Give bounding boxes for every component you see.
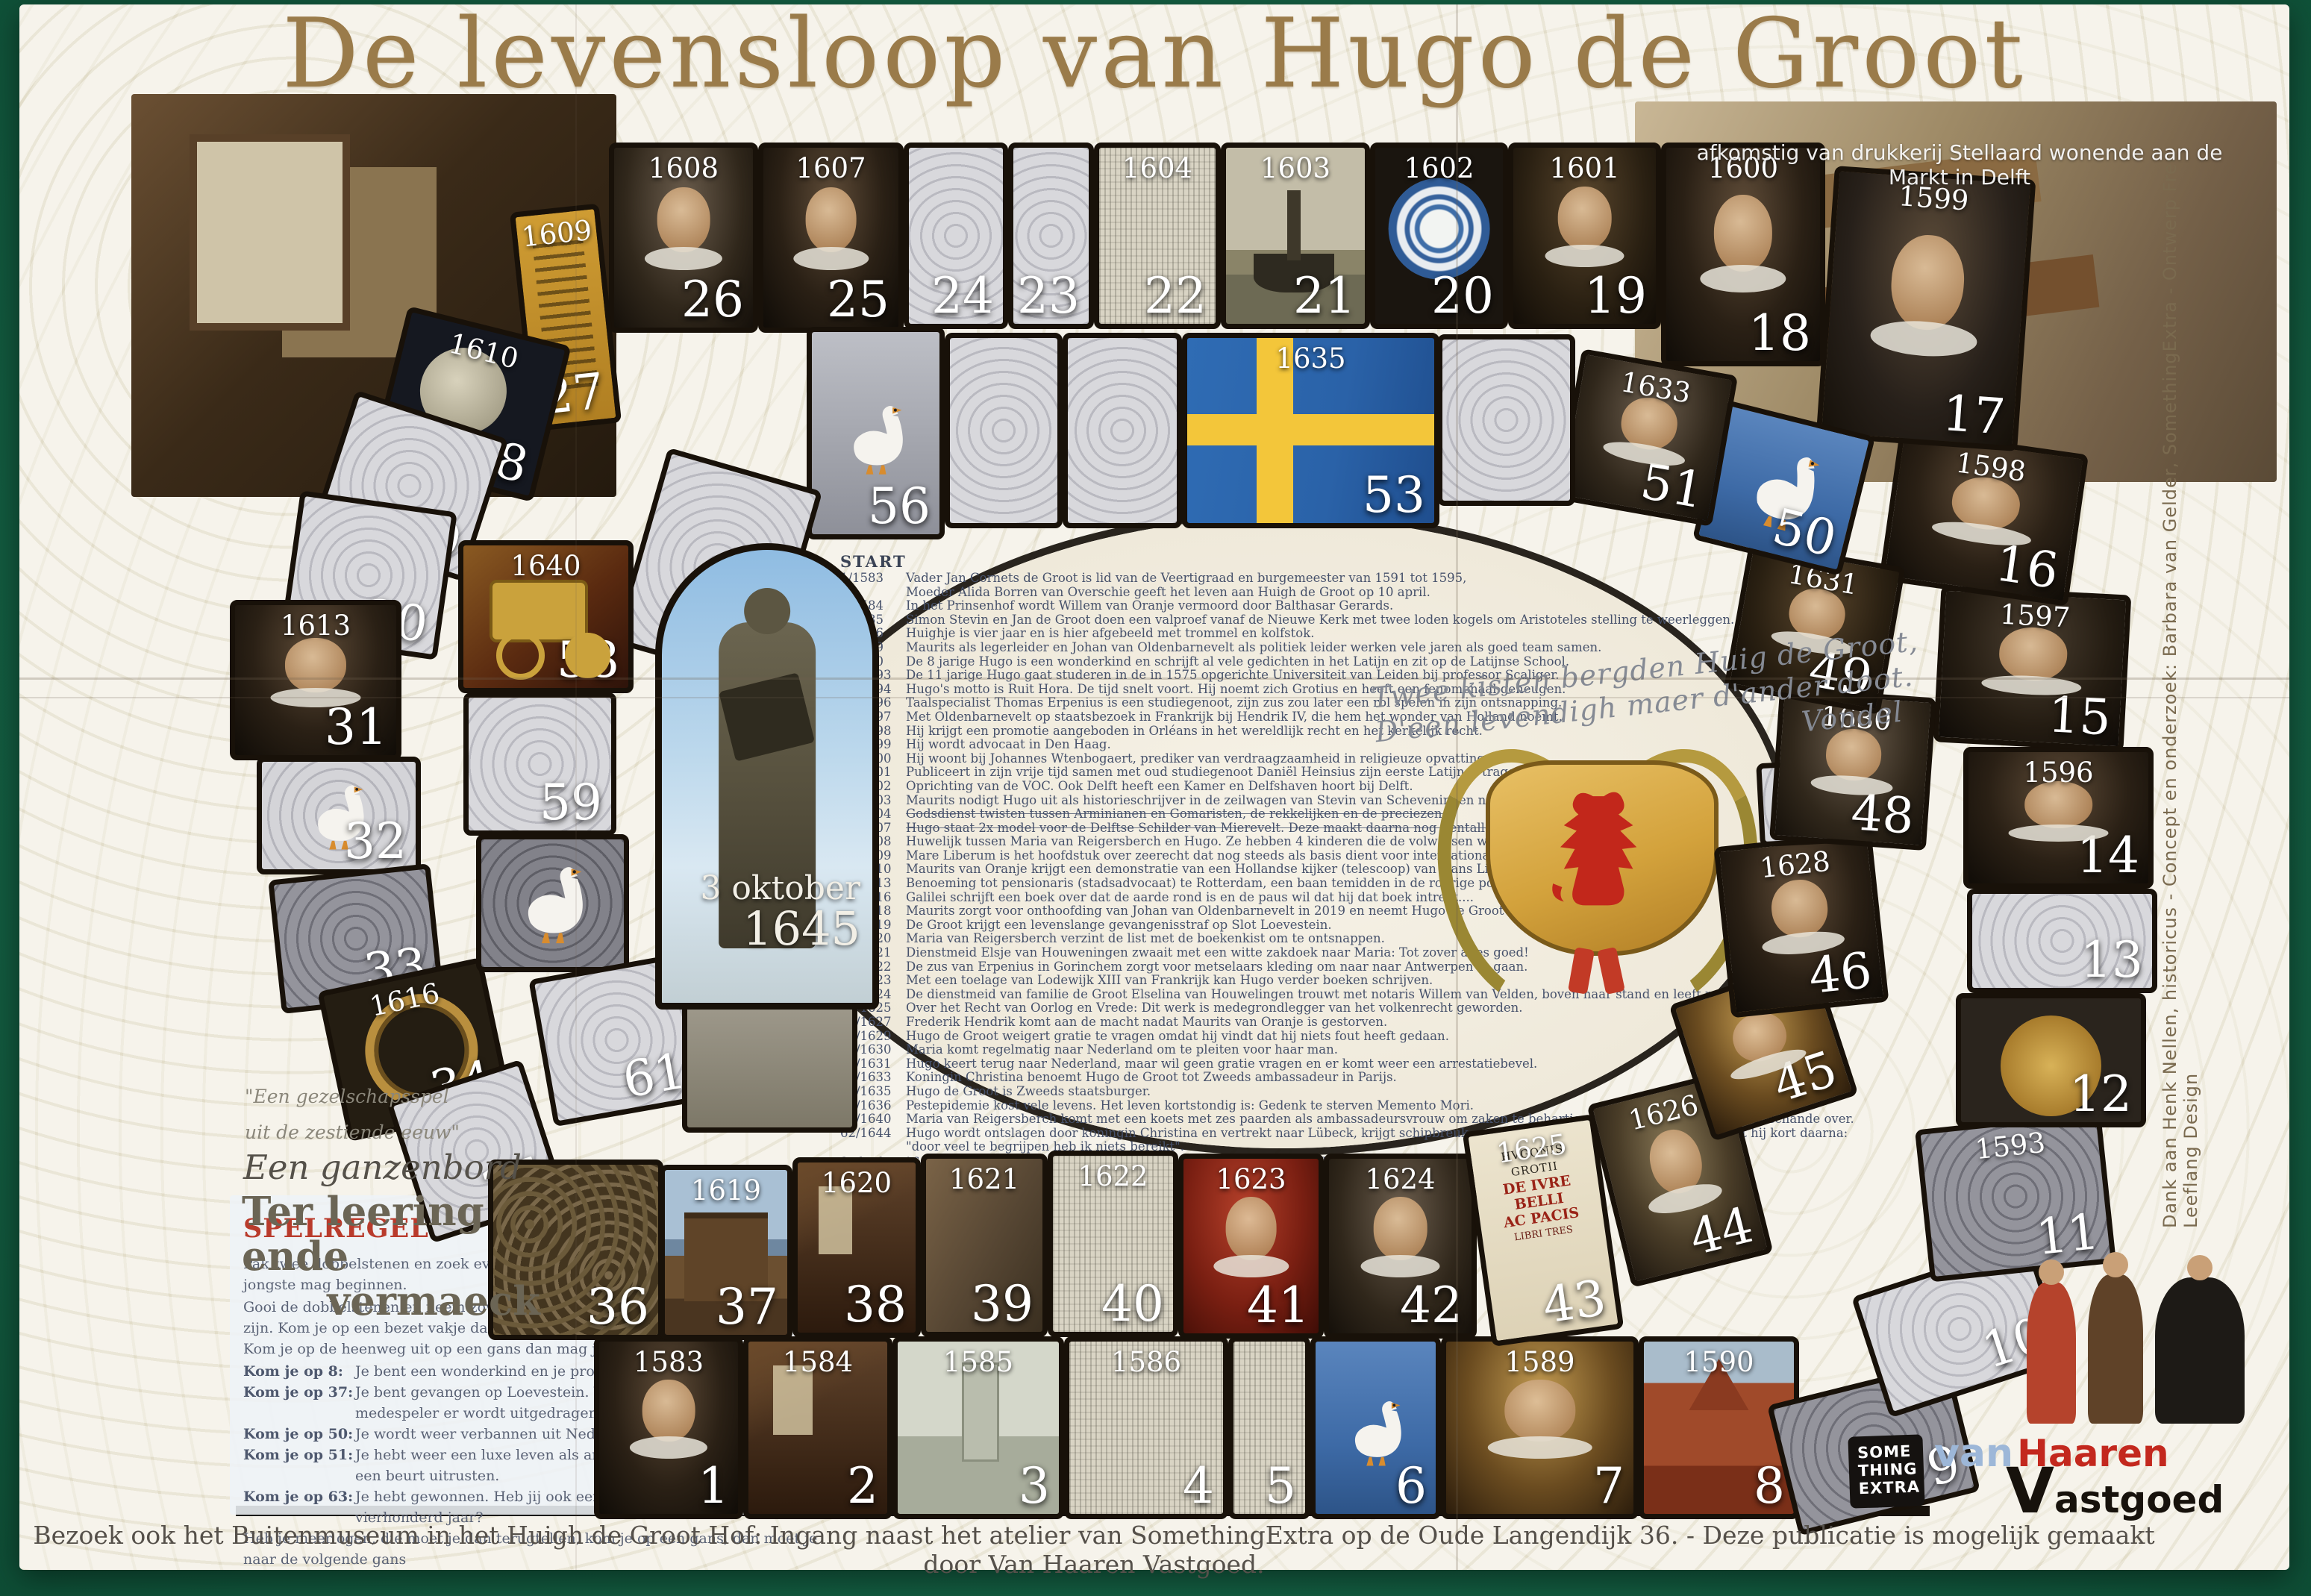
board-space-4[interactable]: 15864 (1064, 1336, 1228, 1519)
space-year: 1640 (510, 550, 581, 582)
board-space[interactable] (945, 333, 1063, 528)
board-space-16[interactable]: 159816 (1879, 428, 2089, 606)
space-number: 37 (716, 1280, 778, 1335)
space-number: 39 (971, 1277, 1033, 1332)
board-space-40[interactable]: 162240 (1048, 1151, 1178, 1337)
space-number: 38 (844, 1278, 907, 1333)
board-space-20[interactable]: 160220 (1370, 143, 1508, 329)
space-year: 1613 (281, 610, 351, 642)
space-year: 1590 (1683, 1346, 1754, 1378)
board-space-41[interactable]: 162341 (1178, 1154, 1324, 1339)
space-number: 18 (1748, 307, 1811, 361)
space-number: 24 (931, 269, 994, 324)
board-space-56[interactable]: 56 (807, 327, 945, 539)
board-space[interactable] (476, 834, 629, 972)
space-number: 13 (2080, 933, 2143, 988)
delft-plate-icon (1388, 178, 1490, 280)
space-number: 23 (1017, 269, 1080, 324)
space-year: 1635 (1275, 342, 1345, 375)
game-poster: De levensloop van Hugo de Groot afkomsti… (19, 4, 2289, 1570)
space-year: 1626 (1625, 1089, 1701, 1137)
costume-figure-red (2027, 1282, 2076, 1424)
space-number: 36 (587, 1280, 649, 1335)
board-space-14[interactable]: 159614 (1963, 747, 2154, 889)
statue-date-line2: 1645 (700, 907, 860, 951)
costume-figure-brown (2088, 1274, 2143, 1424)
space-number: 12 (2069, 1068, 2132, 1122)
space-number: 48 (1849, 786, 1916, 844)
space-number: 1 (698, 1459, 729, 1514)
board-space-19[interactable]: 160119 (1508, 143, 1661, 329)
space-number: 21 (1293, 269, 1356, 324)
space-number: 19 (1584, 269, 1647, 324)
logo-word-van: van (1934, 1431, 2013, 1476)
board-space-3[interactable]: 15853 (892, 1336, 1064, 1519)
space-year: 1619 (691, 1174, 761, 1207)
something-extra-logo: SOMETHINGEXTRA (1848, 1434, 1924, 1508)
space-year: 1620 (822, 1167, 892, 1199)
space-number: 56 (868, 480, 931, 534)
space-63-statue[interactable]: 3 oktober 1645 (655, 543, 879, 1010)
board-space-46[interactable]: 162846 (1714, 831, 1889, 1018)
space-number: 16 (1992, 537, 2061, 600)
board-space-32[interactable]: 32 (257, 757, 421, 874)
space-number: 20 (1431, 269, 1494, 324)
space-number: 15 (2047, 689, 2113, 746)
space-number: 17 (1941, 387, 2007, 445)
space-number: 32 (344, 815, 407, 869)
motto-title-line1: Ter leering ende (242, 1189, 540, 1279)
space-number: 40 (1101, 1277, 1164, 1332)
space-year: 1608 (648, 152, 719, 184)
board-space[interactable] (1063, 333, 1182, 528)
board-space-21[interactable]: 160321 (1221, 143, 1370, 329)
board-space-1[interactable]: 15831 (594, 1336, 743, 1519)
board-space-51[interactable]: 163351 (1556, 348, 1738, 527)
board-space-53[interactable]: 163553 (1182, 333, 1439, 528)
space-number: 59 (540, 776, 602, 830)
space-number: 45 (1767, 1042, 1843, 1113)
board-space-23[interactable]: 23 (1008, 143, 1094, 329)
board-space-12[interactable]: 12 (1956, 993, 2146, 1127)
space-number: 26 (681, 273, 744, 328)
space-year: 1609 (520, 214, 593, 254)
space-year: 1584 (783, 1346, 853, 1378)
board-space-22[interactable]: 160422 (1094, 143, 1221, 329)
board-space-42[interactable]: 162442 (1324, 1154, 1477, 1339)
game-board: 1583115842158531586456158971590891015931… (19, 4, 2289, 1570)
subtitle-ganzenbord: Een ganzenbord (243, 1148, 522, 1187)
board-space-39[interactable]: 162139 (921, 1154, 1048, 1337)
board-space-25[interactable]: 160725 (758, 143, 904, 333)
space-number: 8 (1754, 1459, 1785, 1514)
left-quote-line1: "Een gezelschapsspel (245, 1079, 460, 1115)
logo-word-vastgoed: Vastgoed (2006, 1471, 2224, 1519)
space-year: 1585 (943, 1346, 1013, 1378)
space-year: 1598 (1954, 446, 2027, 488)
space-year: 1583 (634, 1346, 704, 1378)
statue-date: 3 oktober 1645 (700, 869, 860, 951)
space-number: 50 (1767, 500, 1841, 568)
space-number: 46 (1807, 944, 1874, 1004)
goose-icon (501, 860, 604, 962)
space-number: 53 (1363, 469, 1425, 523)
board-space-31[interactable]: 161331 (230, 600, 401, 760)
space-number: 3 (1019, 1459, 1050, 1514)
space-number: 4 (1183, 1459, 1214, 1514)
costume-figures (2019, 1252, 2258, 1424)
motto-title-line2: vermaeck (242, 1279, 540, 1324)
van-haaren-vastgoed-logo: van Haaren Vastgoed (1934, 1434, 2224, 1519)
space-year: 1596 (2023, 757, 2093, 789)
space-number: 7 (1593, 1459, 1624, 1514)
space-year: 1624 (1365, 1163, 1435, 1195)
space-year: 1602 (1404, 152, 1474, 184)
poster-title: De levensloop van Hugo de Groot (19, 0, 2289, 110)
space-year: 1623 (1216, 1163, 1286, 1195)
space-number: 42 (1400, 1279, 1463, 1333)
space-number: 41 (1247, 1279, 1310, 1333)
space-year: 1604 (1122, 152, 1192, 184)
board-space-17[interactable]: 159917 (1816, 166, 2036, 451)
board-space-59[interactable]: 59 (463, 692, 616, 836)
space-number: 51 (1636, 455, 1707, 519)
space-number: 43 (1539, 1271, 1609, 1334)
space-number: 44 (1684, 1198, 1758, 1266)
space-year: 1586 (1111, 1346, 1181, 1378)
space-year: 1628 (1759, 845, 1832, 885)
space-number: 5 (1265, 1459, 1296, 1514)
photo-caption: afkomstig van drukkerij Stellaard wonend… (1676, 140, 2243, 190)
board-space-58[interactable]: 164058 (458, 540, 634, 693)
space-number: 61 (619, 1045, 690, 1109)
left-quote: "Een gezelschapsspel uit de zestiende ee… (245, 1079, 460, 1151)
board-space[interactable] (1437, 334, 1575, 506)
space-year: 1601 (1549, 152, 1619, 184)
board-space-38[interactable]: 162038 (792, 1157, 921, 1338)
motto-title: Ter leering ende vermaeck (242, 1189, 540, 1324)
space-year: 1593 (1974, 1127, 2047, 1166)
space-year: 1589 (1504, 1346, 1574, 1378)
space-year: 1622 (1078, 1160, 1148, 1192)
space-year: 1633 (1619, 366, 1693, 410)
board-space-37[interactable]: 161937 (660, 1165, 792, 1340)
board-space-26[interactable]: 160826 (609, 143, 758, 333)
space-year: 1621 (949, 1163, 1019, 1195)
space-number: 6 (1395, 1459, 1427, 1514)
board-space-15[interactable]: 159715 (1933, 585, 2132, 751)
space-number: 31 (325, 701, 387, 755)
space-number: 2 (847, 1459, 878, 1514)
left-quote-line2: uit de zestiende eeuw" (245, 1115, 460, 1151)
space-year: 1607 (795, 152, 866, 184)
board-space-5[interactable]: 5 (1228, 1336, 1310, 1519)
space-number: 14 (2077, 829, 2139, 883)
space-year: 1616 (367, 977, 443, 1023)
space-number: 22 (1144, 269, 1207, 324)
space-number: 25 (827, 273, 889, 328)
space-number: 58 (557, 633, 619, 688)
board-space-2[interactable]: 15842 (743, 1336, 892, 1519)
costume-figure-black (2155, 1277, 2245, 1424)
bottom-caption: Bezoek ook het Buitenmuseum in het Huigh… (19, 1521, 2168, 1579)
board-space-13[interactable]: 13 (1967, 889, 2157, 993)
space-year: 1603 (1260, 152, 1330, 184)
board-space-24[interactable]: 24 (904, 143, 1008, 329)
board-space-6[interactable]: 6 (1310, 1336, 1441, 1519)
board-space-7[interactable]: 15897 (1441, 1336, 1639, 1519)
space-year: 1610 (445, 327, 522, 375)
